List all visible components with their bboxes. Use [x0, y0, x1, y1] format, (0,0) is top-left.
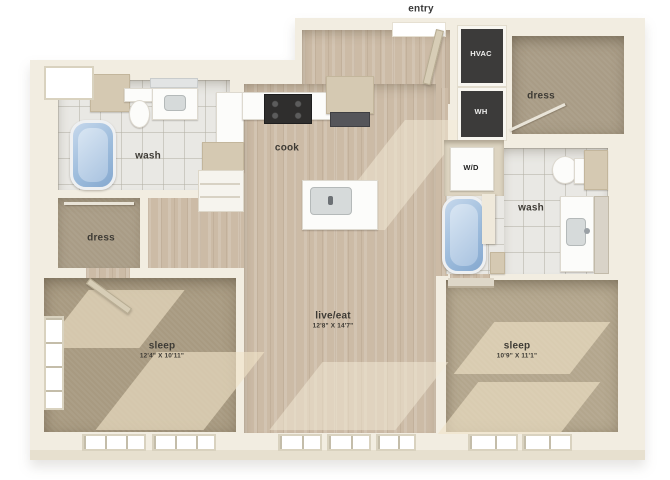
floorplan-image: entry HVAC WH W/D wash [0, 0, 670, 480]
sink-basin-left [164, 95, 186, 111]
hvac-label: HVAC [470, 50, 492, 58]
room-label-live-eat: live/eat 12'8" X 14'7" [313, 310, 354, 329]
window-living-3 [376, 434, 416, 451]
room-label-wash-right: wash [518, 203, 544, 214]
pantry-shelf-line [200, 196, 240, 198]
window-bedroom-left-2 [152, 434, 216, 451]
water-heater-label: WH [475, 108, 488, 116]
kitchen-vent-appliance [330, 112, 370, 127]
bathroom-right-cabinet [584, 150, 608, 190]
island-faucet [328, 196, 333, 205]
window-left-wall [44, 316, 64, 410]
room-label-wash-left: wash [135, 151, 161, 162]
window-bedroom-left-1 [82, 434, 146, 451]
room-dims-sleep-left: 12'4" X 10'11" [140, 352, 184, 359]
refrigerator [326, 76, 374, 114]
bathtub-left [70, 120, 116, 190]
bathroom-right-mirror-door [594, 196, 609, 274]
sink-basin-right [566, 218, 586, 246]
bathroom-right-cabinet-small [490, 252, 505, 274]
room-dims-sleep-right: 10'9" X 11'1" [497, 352, 538, 359]
window-living-2 [327, 434, 371, 451]
room-label-dress-top: dress [527, 91, 555, 102]
window-bedroom-right-2 [522, 434, 572, 451]
room-dims-live-eat: 12'8" X 14'7" [313, 322, 354, 329]
closet-rod-left [64, 202, 134, 205]
stove-cooktop [264, 94, 312, 124]
window-living-1 [278, 434, 322, 451]
bottom-wall-face [30, 450, 645, 460]
kitchen-lower-cabinet [202, 142, 244, 172]
window-top-left [44, 66, 94, 100]
wd-label: W/D [463, 164, 478, 172]
bathtub-right [442, 196, 486, 274]
bath-divider-wall [482, 194, 495, 244]
pantry-shelves [198, 170, 244, 212]
pantry-shelf-line [200, 183, 240, 185]
window-bedroom-right-1 [468, 434, 518, 451]
faucet-right [584, 228, 590, 234]
room-label-sleep-left: sleep 12'4" X 10'11" [140, 340, 184, 359]
bathroom-left-shelf [150, 78, 198, 88]
room-label-entry: entry [408, 4, 433, 15]
toilet-left-bowl [129, 100, 150, 128]
room-label-sleep-right: sleep 10'9" X 11'1" [497, 340, 538, 359]
bedroom-right-closet-shelf [448, 278, 494, 288]
room-label-cook: cook [275, 143, 299, 154]
room-label-dress-left: dress [87, 233, 115, 244]
